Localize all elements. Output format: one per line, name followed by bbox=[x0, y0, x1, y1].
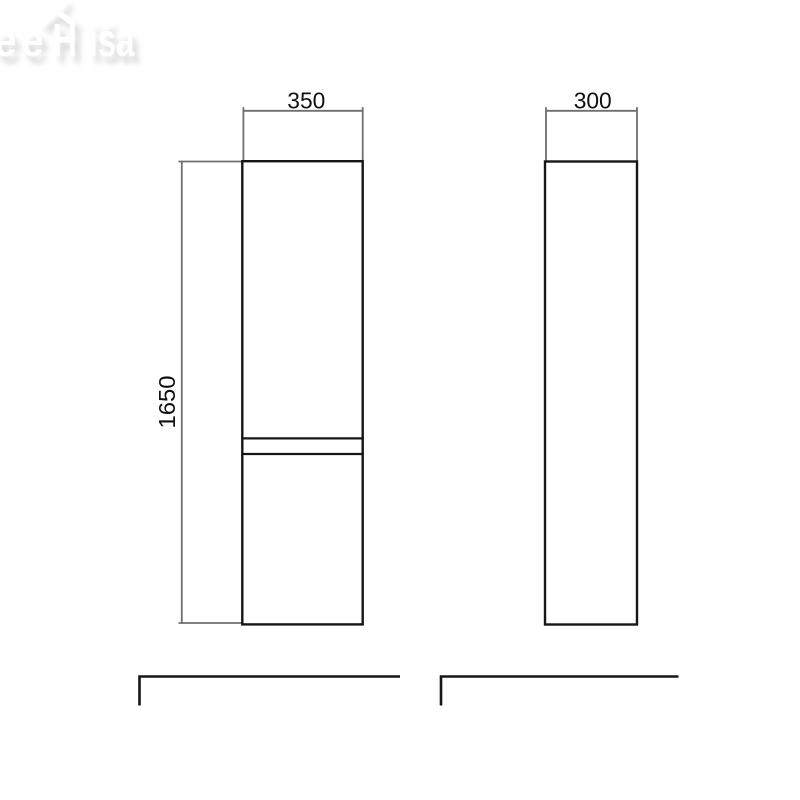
svg-text:1650: 1650 bbox=[154, 376, 180, 429]
svg-text:e: e bbox=[21, 16, 44, 67]
svg-text:300: 300 bbox=[574, 87, 612, 113]
svg-text:e: e bbox=[0, 16, 17, 67]
svg-text:350: 350 bbox=[287, 88, 325, 114]
svg-text:iša: iša bbox=[89, 16, 136, 66]
